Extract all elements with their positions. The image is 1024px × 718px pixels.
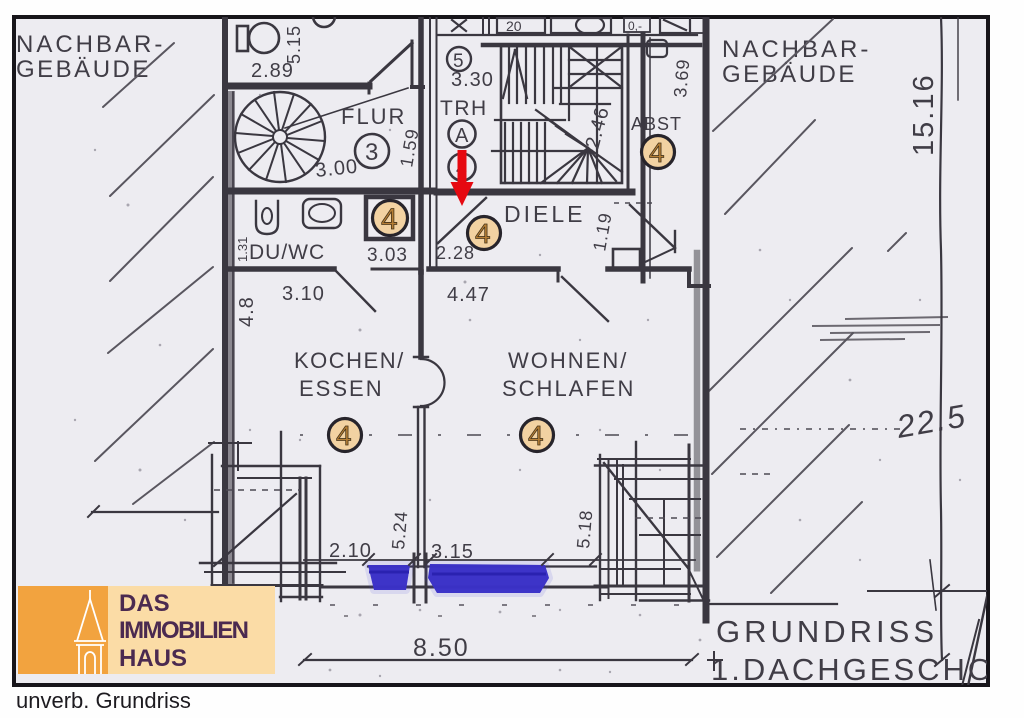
svg-text:20: 20 bbox=[506, 18, 522, 34]
svg-text:GEBÄUDE: GEBÄUDE bbox=[722, 61, 857, 88]
svg-text:5.18: 5.18 bbox=[573, 509, 596, 550]
svg-text:4: 4 bbox=[475, 218, 491, 249]
svg-text:15.16: 15.16 bbox=[908, 73, 940, 156]
svg-text:3.15: 3.15 bbox=[431, 541, 474, 563]
svg-text:2.10: 2.10 bbox=[329, 540, 372, 562]
svg-text:DU/WC: DU/WC bbox=[249, 241, 325, 264]
svg-text:DAS: DAS bbox=[119, 590, 170, 617]
svg-text:WOHNEN/: WOHNEN/ bbox=[508, 348, 628, 373]
svg-text:4: 4 bbox=[381, 203, 398, 236]
svg-text:4: 4 bbox=[649, 137, 665, 168]
svg-text:unverb. Grundriss: unverb. Grundriss bbox=[16, 688, 191, 713]
svg-text:1.DACHGESCHO: 1.DACHGESCHO bbox=[711, 652, 995, 687]
svg-text:NACHBAR-: NACHBAR- bbox=[16, 31, 165, 58]
svg-text:3.69: 3.69 bbox=[670, 58, 693, 99]
svg-text:3.00: 3.00 bbox=[314, 156, 359, 182]
svg-text:0,-: 0,- bbox=[628, 19, 642, 33]
svg-text:2.28: 2.28 bbox=[436, 243, 475, 263]
svg-text:HAUS: HAUS bbox=[119, 645, 187, 672]
svg-text:FLUR: FLUR bbox=[341, 104, 406, 129]
svg-text:8.50: 8.50 bbox=[413, 634, 470, 662]
svg-text:4.8: 4.8 bbox=[236, 296, 258, 327]
svg-text:4.47: 4.47 bbox=[447, 284, 490, 306]
svg-text:5.24: 5.24 bbox=[388, 510, 411, 551]
svg-text:4: 4 bbox=[528, 420, 544, 451]
svg-text:NACHBAR-: NACHBAR- bbox=[722, 36, 871, 63]
svg-text:5.15: 5.15 bbox=[284, 25, 304, 64]
svg-text:DIELE: DIELE bbox=[504, 201, 585, 227]
svg-text:ESSEN: ESSEN bbox=[299, 376, 384, 401]
svg-text:3.03: 3.03 bbox=[367, 245, 408, 266]
svg-text:TRH: TRH bbox=[440, 97, 488, 120]
svg-text:GEBÄUDE: GEBÄUDE bbox=[16, 56, 151, 83]
svg-text:3.10: 3.10 bbox=[282, 283, 325, 305]
svg-text:3: 3 bbox=[365, 139, 378, 166]
svg-text:3.30: 3.30 bbox=[451, 69, 494, 91]
svg-text:4: 4 bbox=[336, 420, 352, 451]
svg-text:GRUNDRISS: GRUNDRISS bbox=[716, 614, 938, 649]
svg-text:IMMOBILIEN: IMMOBILIEN bbox=[119, 617, 249, 644]
svg-text:A: A bbox=[455, 125, 469, 147]
svg-text:SCHLAFEN: SCHLAFEN bbox=[502, 376, 635, 401]
svg-text:ABST: ABST bbox=[631, 114, 682, 134]
svg-text:1.31: 1.31 bbox=[235, 237, 250, 262]
svg-text:KOCHEN/: KOCHEN/ bbox=[294, 348, 405, 373]
